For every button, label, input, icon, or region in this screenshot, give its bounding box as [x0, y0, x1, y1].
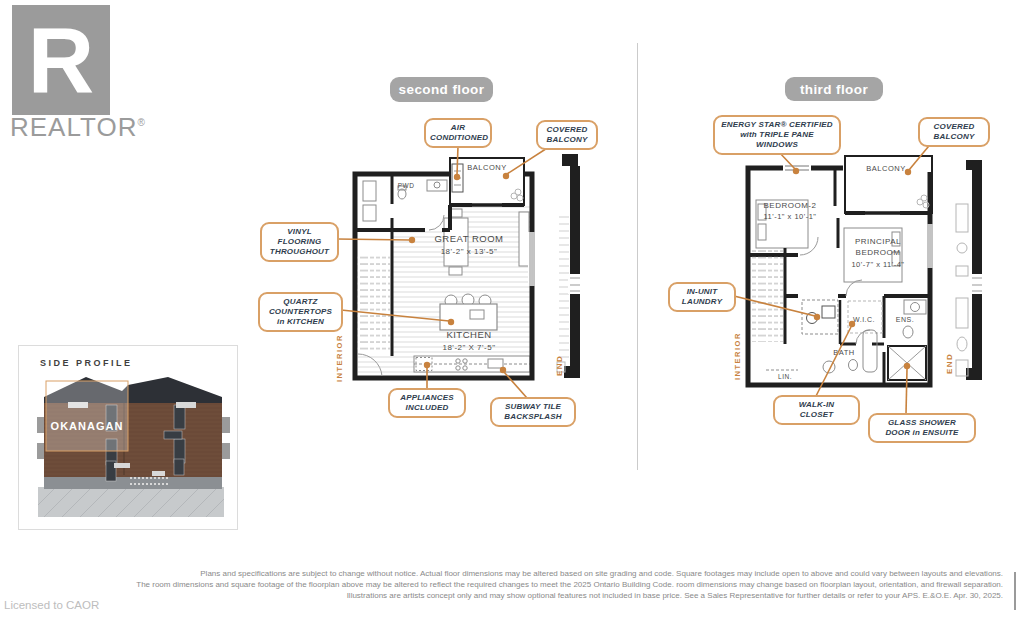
principal-label-2: BEDROOM — [856, 248, 901, 257]
laundry-closet — [802, 300, 838, 334]
edge-tick — [1014, 572, 1016, 610]
licensed-to: Licensed to CAOR — [4, 599, 99, 611]
okanagan-highlight — [46, 381, 128, 451]
building-base — [44, 475, 222, 489]
stairs — [750, 250, 783, 342]
kitchen-label: KITCHEN — [446, 329, 491, 340]
end-edge-label: END — [555, 355, 564, 376]
bath-label: BATH — [833, 348, 854, 357]
callout-in-unit-laundry: IN-UNIT LAUNDRY — [668, 282, 736, 312]
great-room-dims: 18'-2" x 13'-5" — [441, 247, 498, 256]
ac-unit-icon — [452, 164, 463, 192]
kitchen-counter — [414, 356, 530, 372]
realtor-logo-word: REALTOR® — [10, 112, 146, 143]
interior-edge-label: INTERIOR — [335, 334, 344, 382]
principal-dims: 10'-7" x 11'-4" — [851, 260, 904, 269]
callout-air-conditioned: AIR CONDITIONED — [424, 118, 492, 148]
great-room-label: GREAT ROOM — [434, 233, 503, 244]
model-name: OKANAGAN — [51, 420, 124, 432]
ens-label: ENS. — [896, 316, 914, 323]
balcony-label: BALCONY — [866, 164, 905, 173]
building-elevation: OKANAGAN — [37, 377, 230, 517]
callout-quartz-countertops: QUARTZ COUNTERTOPS in KITCHEN — [258, 292, 343, 332]
glass-shower — [888, 346, 926, 380]
bedroom2-dims: 11'-1" x 10'-1" — [763, 212, 816, 221]
registered-mark: ® — [137, 117, 145, 128]
end-wall-strip — [956, 160, 984, 380]
third-floor-badge: third floor — [785, 77, 883, 101]
callout-covered-balcony-2f: COVERED BALCONY — [536, 120, 598, 150]
callout-walk-in-closet: WALK-IN CLOSET — [773, 395, 860, 425]
pwd-label: PWD — [398, 182, 415, 189]
sink-icon — [823, 361, 835, 373]
end-wall-strip — [557, 154, 582, 378]
side-profile-panel: SIDE PROFILE OKANAGAN — [18, 345, 238, 530]
lin-label: LIN. — [778, 373, 792, 380]
kitchen-dims: 18'-2" X 7'-5" — [442, 343, 495, 352]
callout-subway-tile: SUBWAY TILE BACKSPLASH — [490, 397, 576, 427]
second-floor-badge: second floor — [390, 77, 493, 102]
wic-label: W.I.C. — [853, 316, 875, 323]
interior-edge-label: INTERIOR — [733, 332, 742, 380]
panel-divider — [637, 43, 638, 470]
plant-icon — [511, 189, 523, 201]
realtor-logo-mark: R — [12, 5, 110, 115]
callout-vinyl-flooring: VINYL FLOORING THROUGHOUT — [260, 222, 339, 262]
bathtub-icon — [863, 330, 877, 372]
disclaimer: Plans and specifications are subject to … — [100, 568, 1003, 601]
callout-glass-shower: GLASS SHOWER DOOR in ENSUITE — [868, 413, 976, 443]
plant-icon — [917, 195, 929, 208]
side-profile-title: SIDE PROFILE — [40, 358, 133, 368]
realtor-word-text: REALTOR — [10, 112, 137, 142]
end-edge-label: END — [945, 353, 954, 374]
realtor-r-glyph: R — [28, 14, 94, 106]
principal-label-1: PRINCIPAL — [855, 237, 901, 246]
balcony-label: BALCONY — [467, 163, 506, 172]
callout-covered-balcony-3f: COVERED BALCONY — [918, 117, 990, 147]
bedroom2-label: BEDROOM-2 — [764, 201, 817, 210]
second-floor-plan: BALCONY PWD GREAT ROOM 18'-2" x 13'-5" K… — [330, 148, 590, 400]
adjacent-unit-fixtures — [956, 204, 968, 376]
toilet-icon — [849, 360, 858, 371]
triple-pane-window — [783, 163, 811, 172]
callout-energy-star: ENERGY STAR® CERTIFIED with TRIPLE PANE … — [713, 115, 841, 155]
window — [926, 224, 934, 268]
sink-icon — [488, 359, 503, 368]
window — [528, 232, 536, 286]
callout-appliances-included: APPLIANCES INCLUDED — [388, 388, 466, 418]
kitchen-island — [440, 294, 497, 330]
toilet-icon — [903, 326, 913, 338]
